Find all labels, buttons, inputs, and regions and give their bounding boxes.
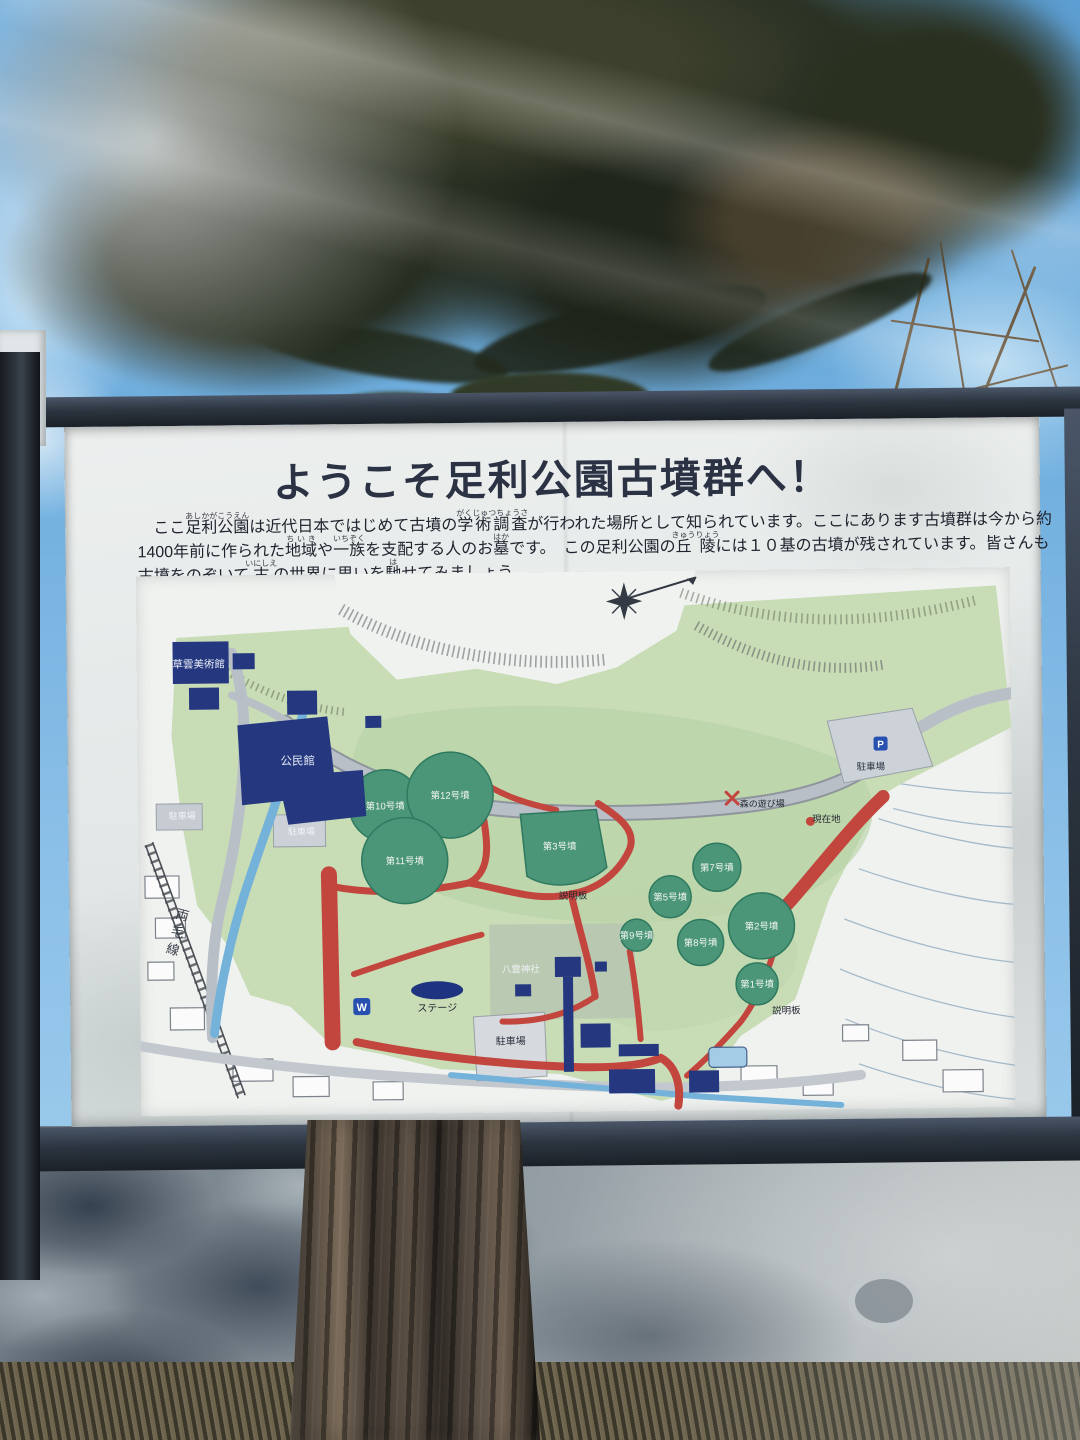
map-label: ステージ [417, 1003, 457, 1014]
svg-text:P: P [877, 740, 884, 751]
dry-grass-strip [0, 1362, 1080, 1440]
outdoor-photo: ようこそ足利公園古墳群へ！ ここ足利公園あしかがこうえんは近代日本ではじめて古墳… [0, 0, 1080, 1440]
kofun-mound-label: 第5号墳 [653, 891, 687, 903]
signboard: ようこそ足利公園古墳群へ！ ここ足利公園あしかがこうえんは近代日本ではじめて古墳… [24, 387, 1080, 1188]
kofun-mound-label: 第11号墳 [386, 855, 425, 867]
map-label: 現在地 [812, 813, 841, 825]
kofun-mound-label: 第1号墳 [740, 978, 774, 990]
map-label: 森の遊び場 [740, 798, 785, 809]
kofun-mound-label: 第10号墳 [366, 800, 406, 812]
map-label: 駐車場 [169, 810, 196, 821]
map-label: 説明板 [559, 890, 588, 902]
sign-post [0, 352, 40, 1280]
kofun-mound-label: 第7号墳 [700, 862, 734, 874]
tree-trunk [290, 1120, 540, 1440]
kofun-mound-label: 第12号墳 [430, 789, 470, 801]
map-label: 駐車場 [288, 826, 315, 837]
kofun-mound-label: 第2号墳 [745, 920, 779, 932]
wc-icon: W [353, 998, 370, 1015]
map-label: 草雲美術館 [172, 657, 225, 671]
map-label: 駐車場 [496, 1034, 526, 1047]
kofun-mound-label: 第8号墳 [684, 937, 718, 949]
map-label: 公民館 [280, 754, 315, 768]
kofun-mound-label: 第9号墳 [620, 929, 654, 941]
map-label: 駐車場 [856, 761, 885, 773]
parking-icon: P [873, 737, 887, 751]
pool [709, 1047, 747, 1067]
park-map: 第10号墳第12号墳第11号墳第3号墳第7号墳第5号墳第2号墳第9号墳第8号墳第… [136, 567, 1016, 1116]
map-label: 説明板 [772, 1004, 801, 1016]
sign-frame-right [1064, 408, 1080, 1138]
svg-text:W: W [357, 1002, 368, 1014]
kofun-mound-label: 第3号墳 [543, 840, 577, 852]
sign-title: ようこそ足利公園古墳群へ！ [64, 441, 1040, 511]
map-label: 八雲神社 [502, 963, 541, 975]
sign-panel: ようこそ足利公園古墳群へ！ ここ足利公園あしかがこうえんは近代日本ではじめて古墳… [64, 417, 1046, 1127]
utility-cover [848, 1272, 920, 1330]
